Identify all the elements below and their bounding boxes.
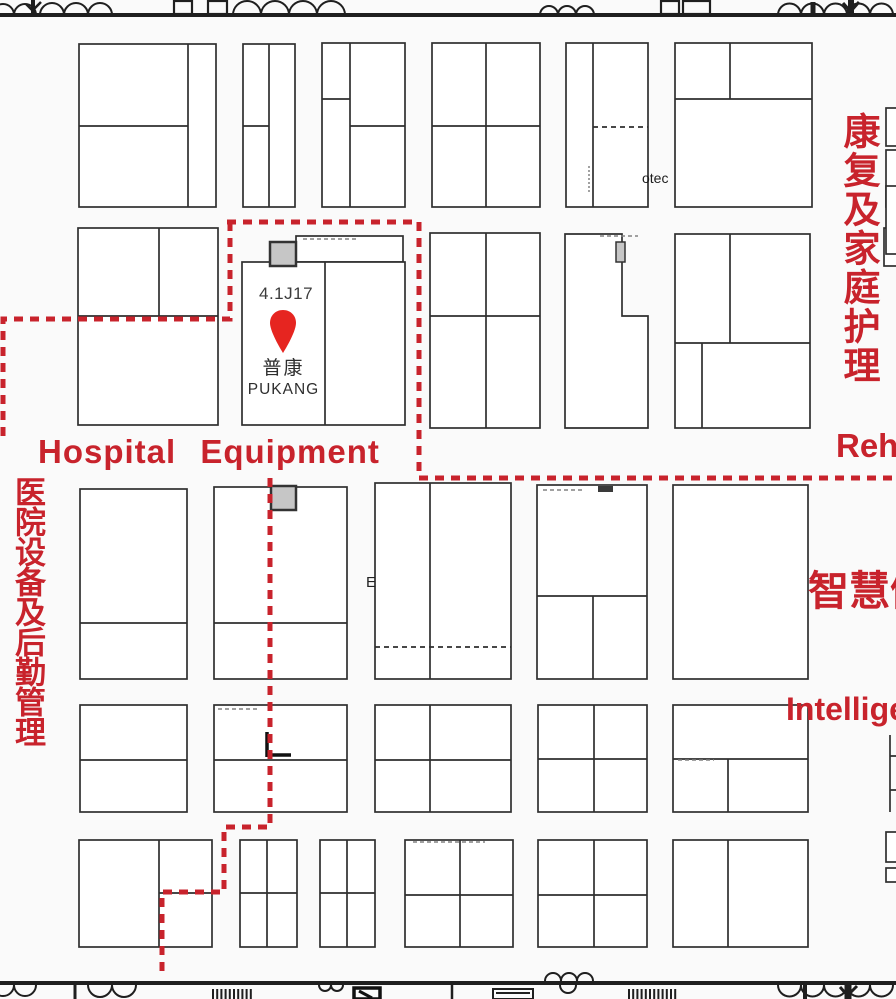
booth-block xyxy=(673,840,808,947)
booth-block xyxy=(675,234,810,428)
booth-block xyxy=(80,489,187,679)
booth-block xyxy=(566,43,648,207)
booth-block xyxy=(80,705,187,812)
booth-block xyxy=(320,840,375,947)
booth-block xyxy=(430,233,540,428)
booth-fragment xyxy=(886,186,896,254)
zone-label-smart-health-partial: 智慧健 xyxy=(808,557,896,617)
floorplan-linework xyxy=(0,0,896,999)
booth-block xyxy=(296,236,403,262)
booth-block xyxy=(214,705,347,812)
zone-label-hospital-equipment: Hospital Equipment xyxy=(38,433,380,471)
pin-booth-name-cn: 普康 xyxy=(242,353,325,380)
top-wall xyxy=(0,13,896,17)
pin-booth-name-en: PUKANG xyxy=(242,381,325,399)
booth-block xyxy=(214,487,347,679)
booth-block xyxy=(405,840,513,947)
expo-floorplan: 4.1J17 普康 PUKANG Hospital Equipment 医院设备… xyxy=(0,0,896,999)
booth-block xyxy=(375,483,511,679)
bottom-wall xyxy=(0,981,896,985)
booth-fragment xyxy=(886,108,896,146)
zone-label-rehabilitation-partial: Reh xyxy=(836,427,896,465)
booth-block xyxy=(79,840,212,947)
booth-block xyxy=(538,705,647,812)
booth-text-e: E xyxy=(366,574,376,591)
pin-booth-code: 4.1J17 xyxy=(259,284,313,304)
zone-label-rehab-homecare-vertical: 康复及家庭护理 xyxy=(831,112,885,385)
booth-text-otec: otec xyxy=(642,170,668,186)
booth-block xyxy=(243,44,295,207)
booth-fragment xyxy=(886,868,896,882)
booth-block xyxy=(673,485,808,679)
equipment-box-icon xyxy=(493,989,533,999)
booth-fragment xyxy=(890,735,896,812)
door-arc-decorations-top xyxy=(0,1,893,15)
booth-fragment xyxy=(886,832,896,862)
tree-icon xyxy=(26,0,859,15)
arrow-box-icon xyxy=(354,988,380,999)
booth-block xyxy=(78,228,218,425)
booth-block xyxy=(322,43,405,207)
booth-block xyxy=(538,840,647,947)
booth-blocks xyxy=(78,43,896,947)
booth-block xyxy=(537,485,647,679)
booth-block xyxy=(432,43,540,207)
booth-block xyxy=(675,43,812,207)
booth-block xyxy=(240,840,297,947)
booth-block xyxy=(565,234,648,428)
zone-label-intelligent-partial: Intellige xyxy=(786,691,896,728)
booth-block xyxy=(79,44,216,207)
booth-block xyxy=(375,705,511,812)
zone-label-hospital-logistics-vertical: 医院设备及后勤管理 xyxy=(5,476,50,746)
